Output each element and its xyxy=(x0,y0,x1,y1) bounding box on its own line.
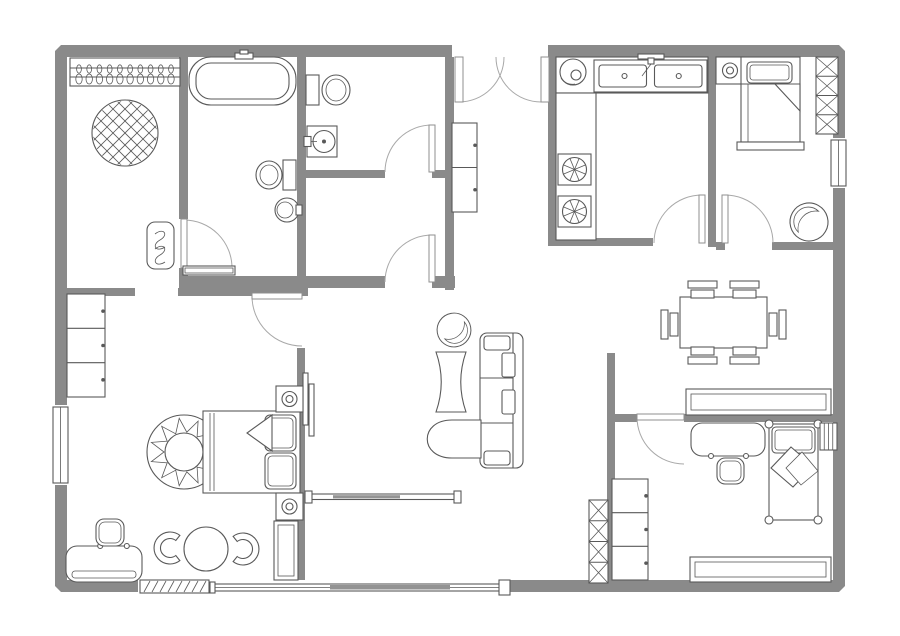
bedroom1-nightstand-1 xyxy=(276,386,303,412)
bedroom1-ottoman xyxy=(96,519,124,546)
bath2-toilet xyxy=(306,75,350,105)
bedroom3-shelf xyxy=(690,557,831,582)
bedroom3-dresser xyxy=(612,479,648,580)
dining-sideboard xyxy=(686,389,831,415)
bedroom3-desk xyxy=(691,423,765,459)
bedroom2-bed xyxy=(737,57,804,150)
living-sofa xyxy=(480,333,523,468)
floor-plan xyxy=(0,0,900,636)
bedroom3-stool xyxy=(717,458,744,484)
kitchen-round-sink xyxy=(560,59,586,85)
living-shelf-unit xyxy=(589,500,608,583)
dining-chair-5 xyxy=(661,310,678,339)
dining-chair-1 xyxy=(688,281,717,298)
bedroom1-wardrobe xyxy=(274,521,298,580)
window-bedroom-right xyxy=(831,140,846,186)
floor-plan-canvas xyxy=(0,0,900,636)
living-armchair xyxy=(427,420,481,458)
dining-chair-2 xyxy=(730,281,759,298)
bedroom3-rack xyxy=(820,423,837,450)
bedroom2-nightstand xyxy=(716,57,744,84)
kitchen-double-sink xyxy=(594,54,707,92)
kitchen-burner-2 xyxy=(558,196,591,227)
bath1-shelf xyxy=(183,266,235,275)
bedroom2-closet-shelves xyxy=(816,57,838,134)
bedroom1-settee xyxy=(66,544,142,583)
dining-chair-3 xyxy=(688,347,717,364)
dining-chair-4 xyxy=(730,347,759,364)
dining-table xyxy=(680,297,767,348)
bath2-basin xyxy=(304,126,337,157)
bedroom1-dresser xyxy=(67,294,105,397)
bath1-toilet xyxy=(256,160,296,190)
closet-door-mat xyxy=(147,222,174,269)
bedroom1-table xyxy=(184,527,228,571)
bath1-bathtub xyxy=(189,50,296,105)
hall-cabinet xyxy=(452,123,477,212)
window-bedroom-left xyxy=(53,407,68,483)
closet-hanger-rail xyxy=(70,58,180,86)
bedroom1-bed xyxy=(203,411,300,493)
window-louver-bottom xyxy=(140,580,209,593)
dining-chair-6 xyxy=(769,310,786,339)
bedroom1-nightstand-2 xyxy=(276,493,303,520)
kitchen-burner-1 xyxy=(558,154,591,185)
